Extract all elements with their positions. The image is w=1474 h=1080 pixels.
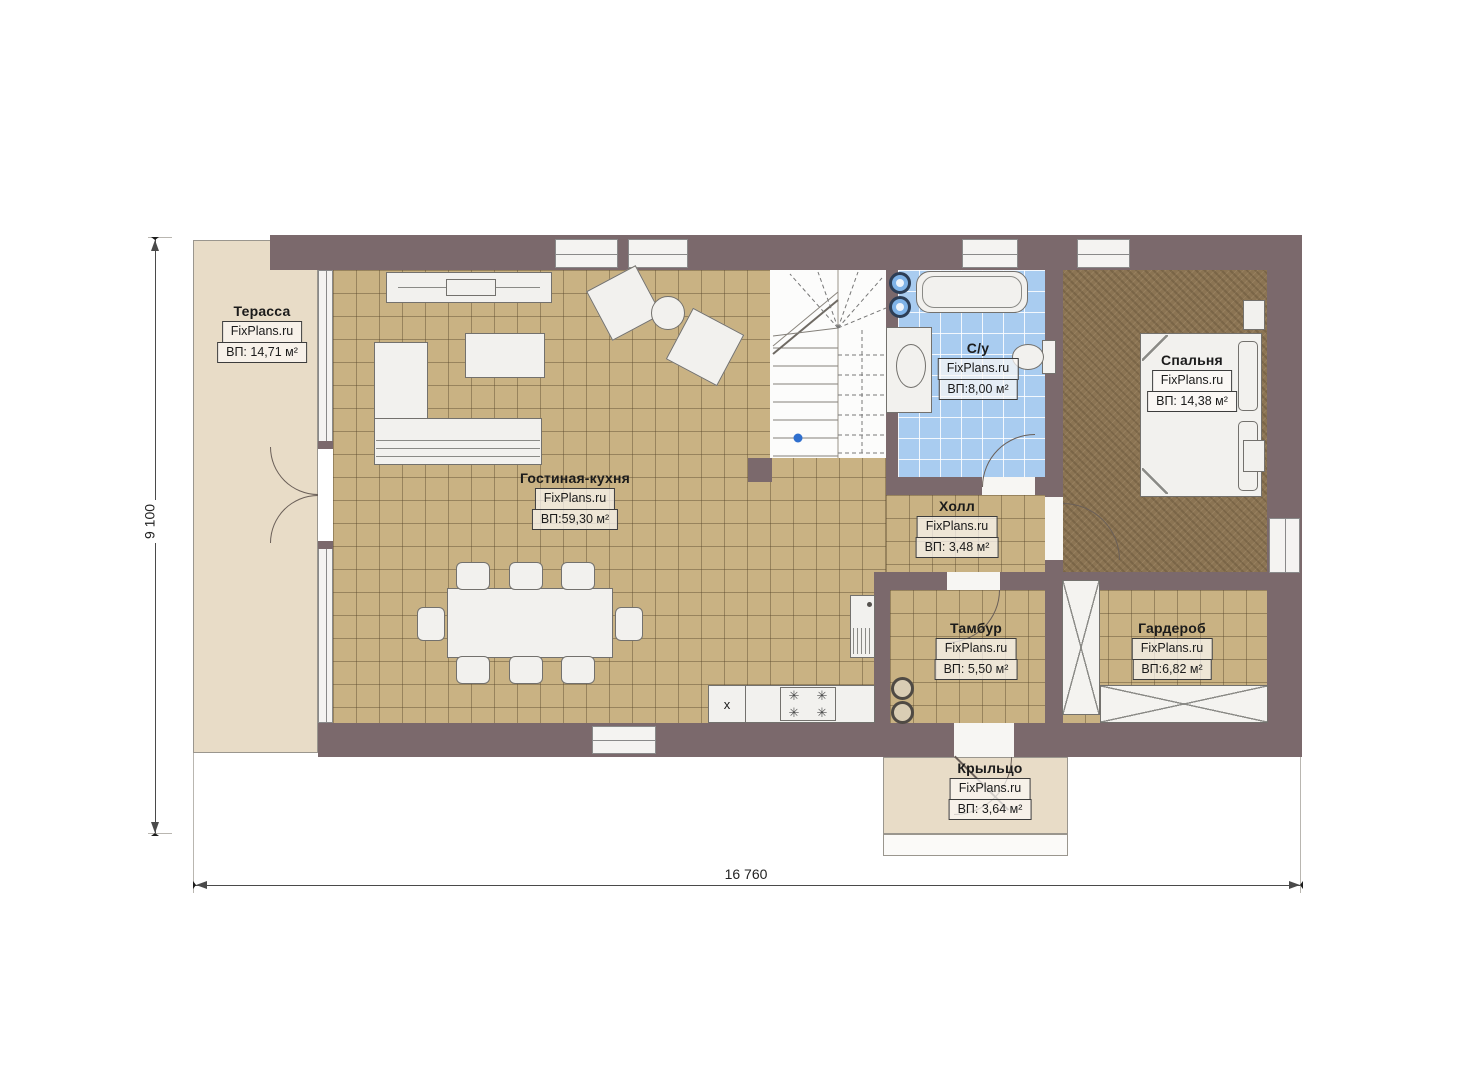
- arrow-down-icon: [151, 822, 159, 836]
- bath-sink: [896, 344, 926, 388]
- sofa-cushion-line: [376, 440, 540, 441]
- room-label-wardrobe: Гардероб FixPlans.ru ВП:6,82 м²: [1132, 620, 1213, 680]
- room-title: Крыльцо: [957, 760, 1022, 776]
- window-top-1: [555, 239, 618, 268]
- window-right: [1269, 518, 1300, 573]
- sink-drainer-icon: [853, 628, 872, 654]
- room-label-bath: С/у FixPlans.ru ВП:8,00 м²: [938, 340, 1019, 400]
- room-title: С/у: [967, 340, 989, 356]
- coffee-table: [465, 333, 545, 378]
- room-title: Гардероб: [1138, 620, 1206, 636]
- dining-chair: [561, 656, 595, 684]
- room-area: ВП: 3,64 м²: [949, 799, 1032, 821]
- room-area: ВП:8,00 м²: [938, 379, 1017, 401]
- room-title: Терасса: [234, 303, 291, 319]
- room-title: Гостиная-кухня: [520, 470, 630, 486]
- dining-chair: [417, 607, 445, 641]
- brand-badge: FixPlans.ru: [936, 638, 1017, 660]
- wall-kitchen-tambur: [874, 572, 890, 723]
- arrow-left-icon: [193, 881, 207, 889]
- staircase: [770, 270, 888, 458]
- window-top-3: [962, 239, 1018, 268]
- dimension-height-label: 9 100: [142, 500, 158, 543]
- tambur-door-opening: [947, 572, 1000, 590]
- column: [748, 458, 772, 482]
- terrace-window-upper: [318, 270, 333, 447]
- tv-unit: [446, 279, 496, 296]
- sofa-cushion-line: [376, 456, 540, 457]
- window-top-4: [1077, 239, 1130, 268]
- burner-icon: ✳: [817, 705, 828, 721]
- window-bottom: [592, 726, 656, 754]
- toilet-tank: [1042, 340, 1056, 374]
- room-label-living: Гостиная-кухня FixPlans.ru ВП:59,30 м²: [520, 470, 630, 530]
- faucet-icon: [867, 602, 872, 607]
- dining-chair: [456, 656, 490, 684]
- arrow-up-icon: [151, 237, 159, 251]
- arrow-right-icon: [1289, 881, 1303, 889]
- terrace-window-lower: [318, 543, 333, 723]
- wall-right: [1267, 235, 1302, 757]
- burner-icon: ✳: [789, 705, 800, 721]
- wall-top: [270, 235, 1302, 270]
- brand-badge: FixPlans.ru: [1132, 638, 1213, 660]
- burner-icon: ✳: [789, 688, 800, 704]
- wall-bottom: [318, 723, 1302, 757]
- room-title: Холл: [939, 498, 975, 514]
- window-top-2: [628, 239, 688, 268]
- room-label-tambur: Тамбур FixPlans.ru ВП: 5,50 м²: [935, 620, 1018, 680]
- kitchen-cabinet-x: x: [708, 685, 746, 723]
- room-title: Спальня: [1161, 352, 1223, 368]
- boiler-icon: [891, 701, 914, 724]
- floor-plan-canvas: x ✳ ✳ ✳ ✳ Терасса FixPlans.ru ВП: 14,71 …: [0, 0, 1474, 1080]
- brand-badge: FixPlans.ru: [222, 321, 303, 343]
- room-label-hall: Холл FixPlans.ru ВП: 3,48 м²: [916, 498, 999, 558]
- dining-chair: [509, 656, 543, 684]
- room-area: ВП:6,82 м²: [1132, 659, 1211, 681]
- porch-step: [883, 834, 1068, 856]
- room-area: ВП: 5,50 м²: [935, 659, 1018, 681]
- blanket-fold-icon: [1142, 468, 1168, 494]
- washer-icon: [889, 272, 911, 294]
- extension-line: [1300, 757, 1301, 893]
- kitchen-x-marker: x: [724, 697, 731, 712]
- extension-line: [193, 753, 194, 893]
- entrance-door-opening: [954, 723, 1014, 757]
- bathtub-inner: [922, 276, 1022, 308]
- brand-badge: FixPlans.ru: [938, 358, 1019, 380]
- brand-badge: FixPlans.ru: [950, 778, 1031, 800]
- brand-badge: FixPlans.ru: [917, 516, 998, 538]
- nightstand: [1243, 300, 1265, 330]
- stove-burners: ✳ ✳ ✳ ✳: [780, 687, 836, 721]
- dimension-width-label: 16 760: [721, 866, 772, 882]
- stair-marker-dot: [794, 434, 803, 443]
- bedroom-door-opening: [1045, 497, 1063, 560]
- boiler-icon: [891, 677, 914, 700]
- wardrobe-unit-horizontal: [1100, 685, 1268, 723]
- room-label-bedroom: Спальня FixPlans.ru ВП: 14,38 м²: [1147, 352, 1237, 412]
- door-jamb-top: [318, 441, 333, 449]
- dining-chair: [456, 562, 490, 590]
- side-table-round: [651, 296, 685, 330]
- burner-icon: ✳: [817, 688, 828, 704]
- wardrobe-unit-vertical: [1062, 580, 1100, 715]
- door-jamb-bottom: [318, 541, 333, 549]
- dining-table: [447, 588, 613, 658]
- room-label-terrace: Терасса FixPlans.ru ВП: 14,71 м²: [217, 303, 307, 363]
- sofa-seat: [374, 418, 542, 465]
- washer-icon: [889, 296, 911, 318]
- dimension-line-horizontal: [193, 885, 1300, 886]
- dining-chair: [561, 562, 595, 590]
- brand-badge: FixPlans.ru: [1152, 370, 1233, 392]
- room-label-porch: Крыльцо FixPlans.ru ВП: 3,64 м²: [949, 760, 1032, 820]
- room-area: ВП: 14,38 м²: [1147, 391, 1237, 413]
- brand-badge: FixPlans.ru: [535, 488, 616, 510]
- room-area: ВП: 14,71 м²: [217, 342, 307, 364]
- dining-chair: [615, 607, 643, 641]
- sofa-cushion-line: [376, 448, 540, 449]
- nightstand: [1243, 440, 1265, 472]
- dining-chair: [509, 562, 543, 590]
- pillow: [1238, 341, 1258, 411]
- room-title: Тамбур: [950, 620, 1002, 636]
- room-area: ВП: 3,48 м²: [916, 537, 999, 559]
- room-area: ВП:59,30 м²: [532, 509, 618, 531]
